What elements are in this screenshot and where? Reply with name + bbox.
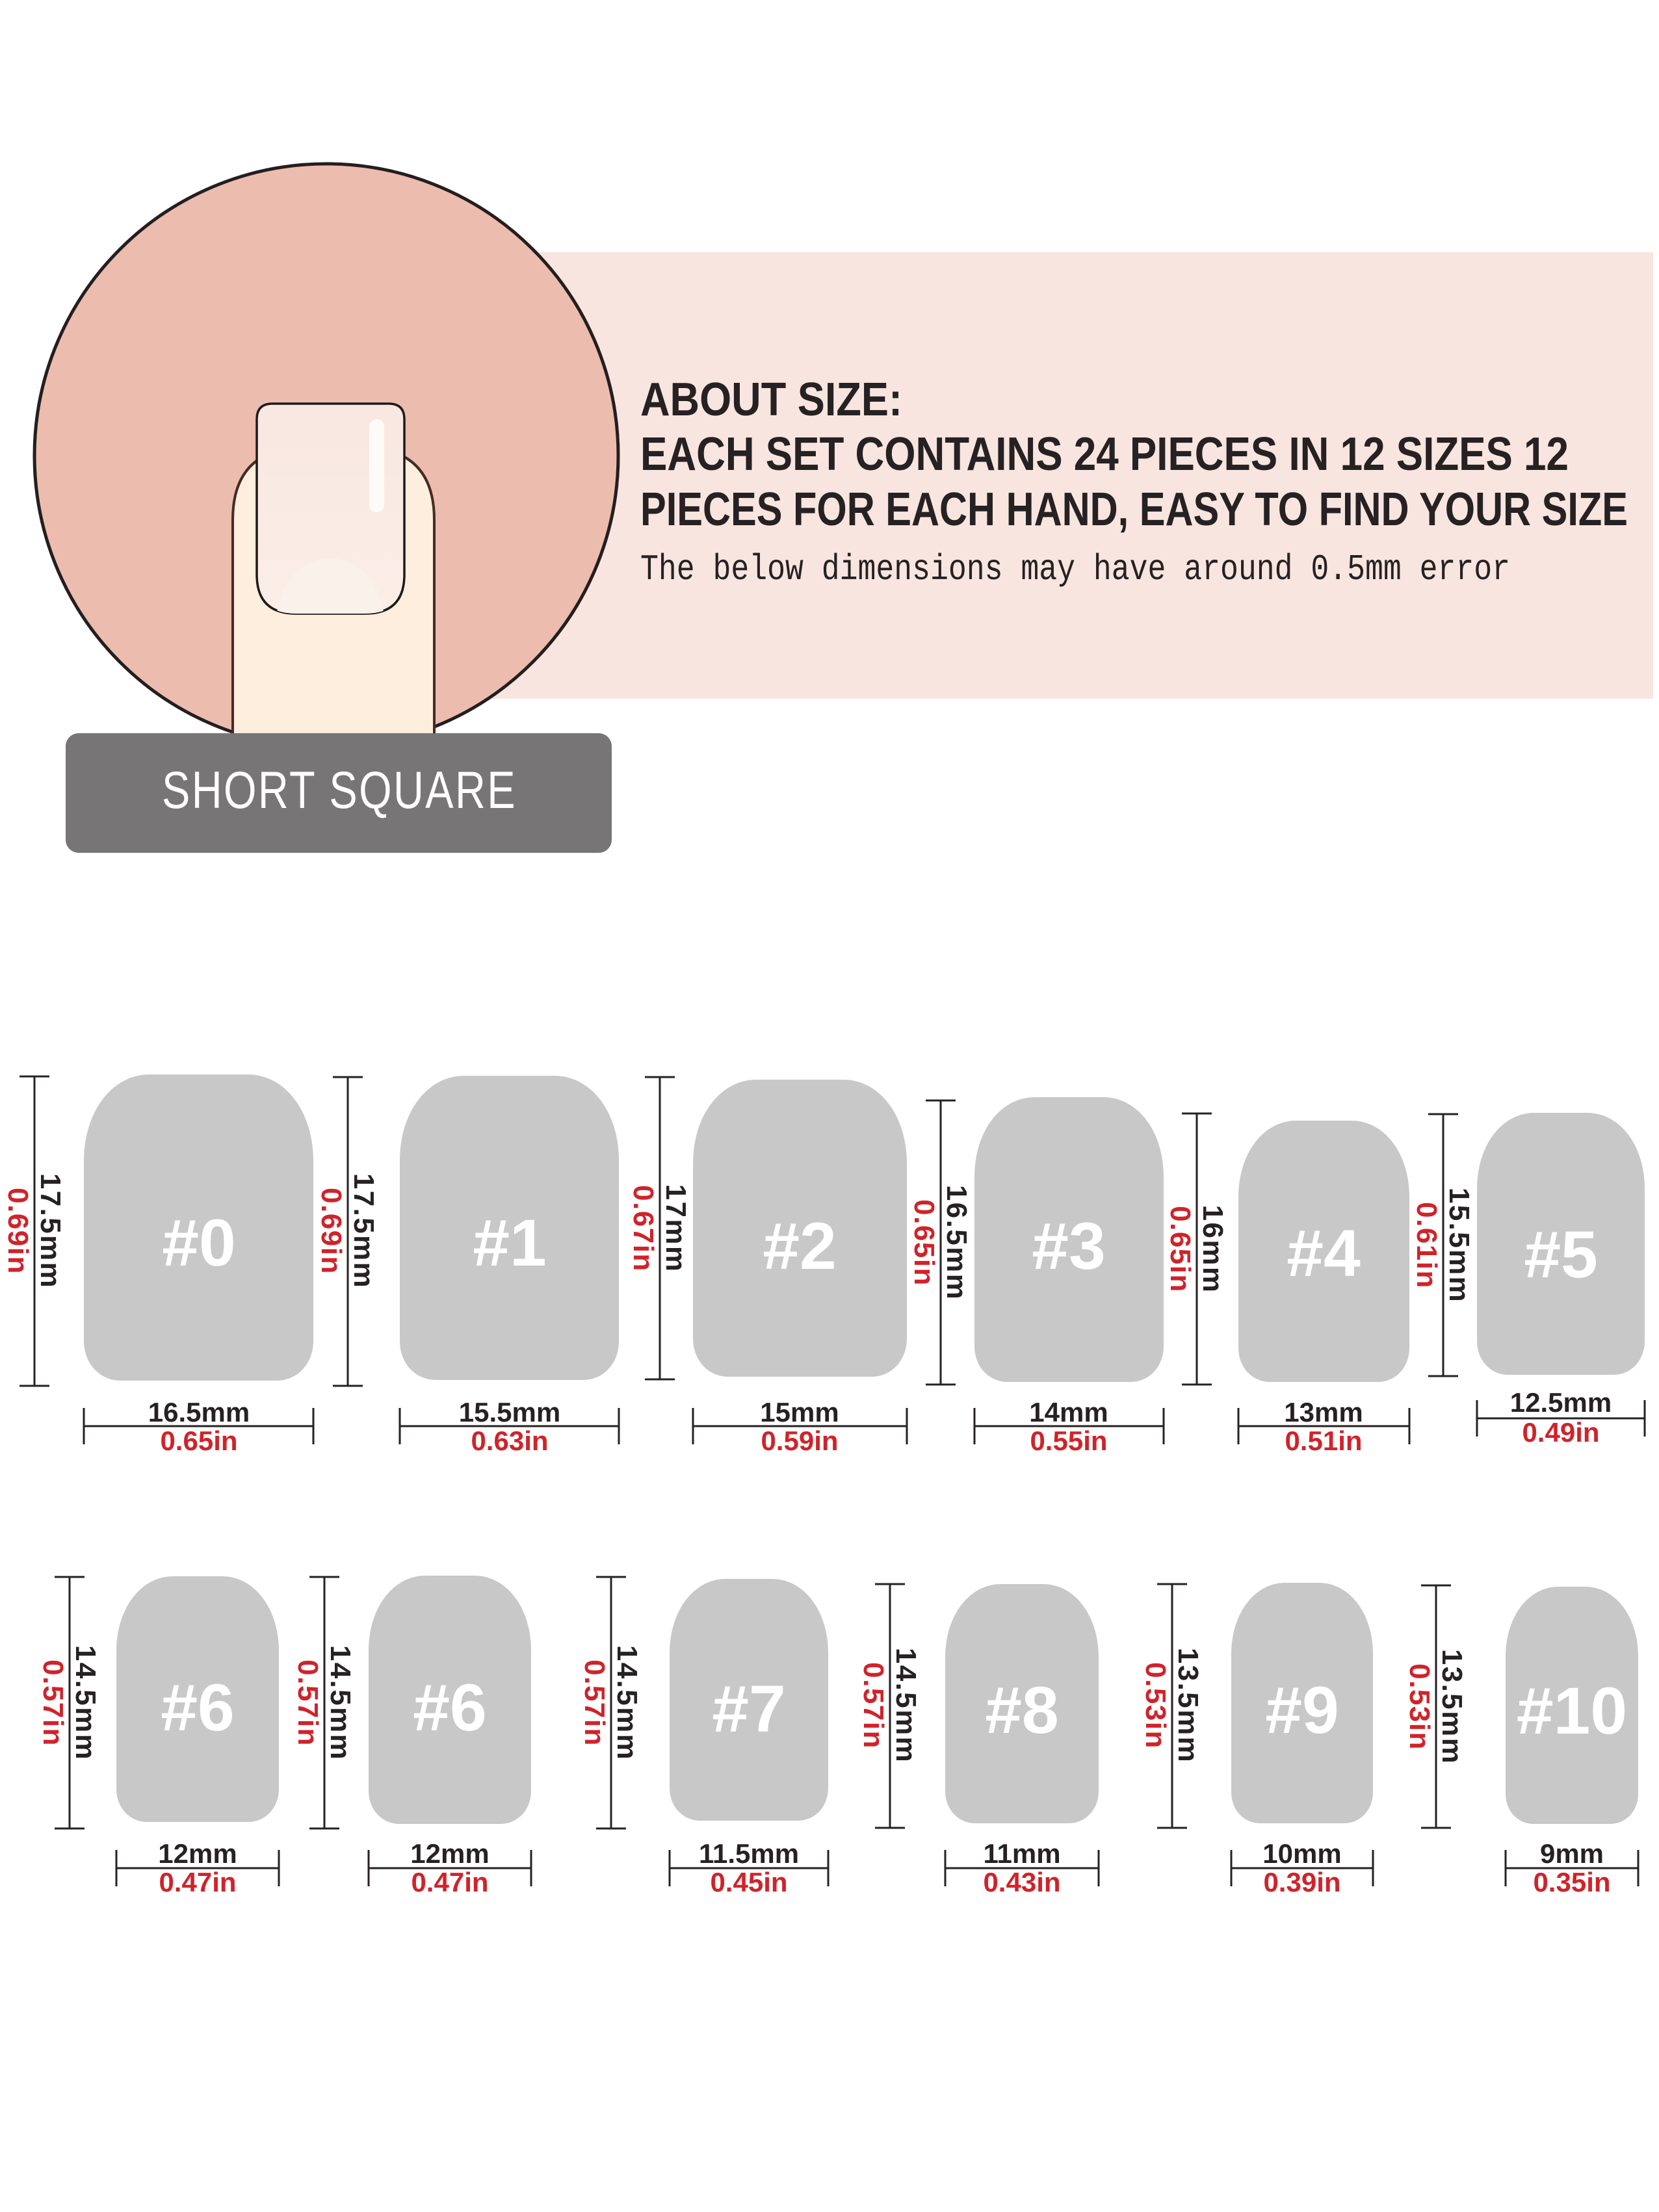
svg-text:0.55in: 0.55in xyxy=(1030,1425,1107,1456)
svg-text:0.69in: 0.69in xyxy=(315,1188,347,1275)
svg-text:14.5mm: 14.5mm xyxy=(611,1645,643,1761)
svg-text:The below dimensions may have: The below dimensions may have around 0.5… xyxy=(640,549,1510,590)
svg-text:#7: #7 xyxy=(712,1672,785,1746)
svg-text:0.65in: 0.65in xyxy=(908,1199,940,1286)
svg-text:#0: #0 xyxy=(162,1206,235,1280)
svg-text:0.51in: 0.51in xyxy=(1285,1425,1362,1456)
svg-text:13.5mm: 13.5mm xyxy=(1436,1649,1468,1765)
svg-text:ABOUT SIZE:: ABOUT SIZE: xyxy=(640,374,902,426)
svg-text:0.69in: 0.69in xyxy=(2,1188,34,1275)
svg-text:0.49in: 0.49in xyxy=(1522,1417,1599,1448)
svg-text:12.5mm: 12.5mm xyxy=(1510,1387,1612,1418)
svg-text:#4: #4 xyxy=(1287,1216,1361,1290)
svg-text:15.5mm: 15.5mm xyxy=(459,1397,560,1427)
svg-text:0.63in: 0.63in xyxy=(471,1425,548,1456)
svg-text:#3: #3 xyxy=(1032,1209,1105,1283)
svg-text:0.43in: 0.43in xyxy=(983,1867,1060,1897)
svg-text:#1: #1 xyxy=(473,1206,546,1280)
svg-text:11mm: 11mm xyxy=(983,1838,1060,1869)
svg-text:#8: #8 xyxy=(985,1673,1058,1747)
svg-text:#9: #9 xyxy=(1265,1673,1339,1747)
svg-text:0.67in: 0.67in xyxy=(627,1185,659,1272)
svg-text:15mm: 15mm xyxy=(760,1397,839,1427)
svg-text:14mm: 14mm xyxy=(1029,1397,1108,1427)
svg-text:0.53in: 0.53in xyxy=(1140,1662,1171,1749)
svg-text:15.5mm: 15.5mm xyxy=(1443,1188,1475,1303)
svg-text:14.5mm: 14.5mm xyxy=(324,1645,356,1761)
svg-text:14.5mm: 14.5mm xyxy=(890,1648,922,1763)
svg-text:PIECES FOR EACH HAND, EASY TO: PIECES FOR EACH HAND, EASY TO FIND YOUR … xyxy=(640,484,1628,536)
svg-text:0.45in: 0.45in xyxy=(710,1867,787,1897)
svg-text:11.5mm: 11.5mm xyxy=(699,1838,799,1869)
svg-text:0.47in: 0.47in xyxy=(411,1867,488,1897)
svg-text:0.57in: 0.57in xyxy=(857,1662,889,1749)
svg-text:0.57in: 0.57in xyxy=(579,1659,610,1747)
svg-text:16.5mm: 16.5mm xyxy=(148,1397,250,1427)
svg-text:#6: #6 xyxy=(413,1671,486,1745)
svg-text:17mm: 17mm xyxy=(660,1184,692,1273)
svg-text:13mm: 13mm xyxy=(1284,1397,1363,1427)
svg-text:EACH SET CONTAINS 24 PIECES IN: EACH SET CONTAINS 24 PIECES IN 12 SIZES … xyxy=(640,428,1569,480)
svg-text:SHORT SQUARE: SHORT SQUARE xyxy=(162,761,517,820)
svg-text:17.5mm: 17.5mm xyxy=(34,1173,66,1289)
svg-text:16.5mm: 16.5mm xyxy=(941,1185,973,1301)
svg-text:17.5mm: 17.5mm xyxy=(348,1173,380,1289)
svg-text:0.61in: 0.61in xyxy=(1411,1202,1443,1289)
svg-text:16mm: 16mm xyxy=(1197,1205,1229,1294)
svg-text:0.57in: 0.57in xyxy=(37,1659,69,1747)
svg-text:0.65in: 0.65in xyxy=(160,1425,237,1456)
svg-text:0.47in: 0.47in xyxy=(159,1867,236,1897)
svg-text:0.39in: 0.39in xyxy=(1263,1867,1340,1897)
svg-text:0.35in: 0.35in xyxy=(1533,1867,1610,1897)
svg-text:#5: #5 xyxy=(1524,1217,1597,1292)
svg-text:#10: #10 xyxy=(1517,1674,1627,1748)
svg-text:0.53in: 0.53in xyxy=(1404,1663,1435,1750)
svg-text:0.59in: 0.59in xyxy=(761,1425,838,1456)
svg-text:#6: #6 xyxy=(161,1671,234,1745)
svg-text:#2: #2 xyxy=(763,1209,836,1283)
svg-text:0.57in: 0.57in xyxy=(292,1659,324,1747)
svg-text:0.65in: 0.65in xyxy=(1164,1206,1196,1293)
svg-text:12mm: 12mm xyxy=(158,1838,237,1869)
svg-text:9mm: 9mm xyxy=(1540,1838,1604,1869)
svg-text:14.5mm: 14.5mm xyxy=(70,1645,101,1761)
svg-text:12mm: 12mm xyxy=(410,1838,489,1869)
svg-text:10mm: 10mm xyxy=(1262,1838,1341,1869)
svg-text:13.5mm: 13.5mm xyxy=(1172,1648,1204,1763)
